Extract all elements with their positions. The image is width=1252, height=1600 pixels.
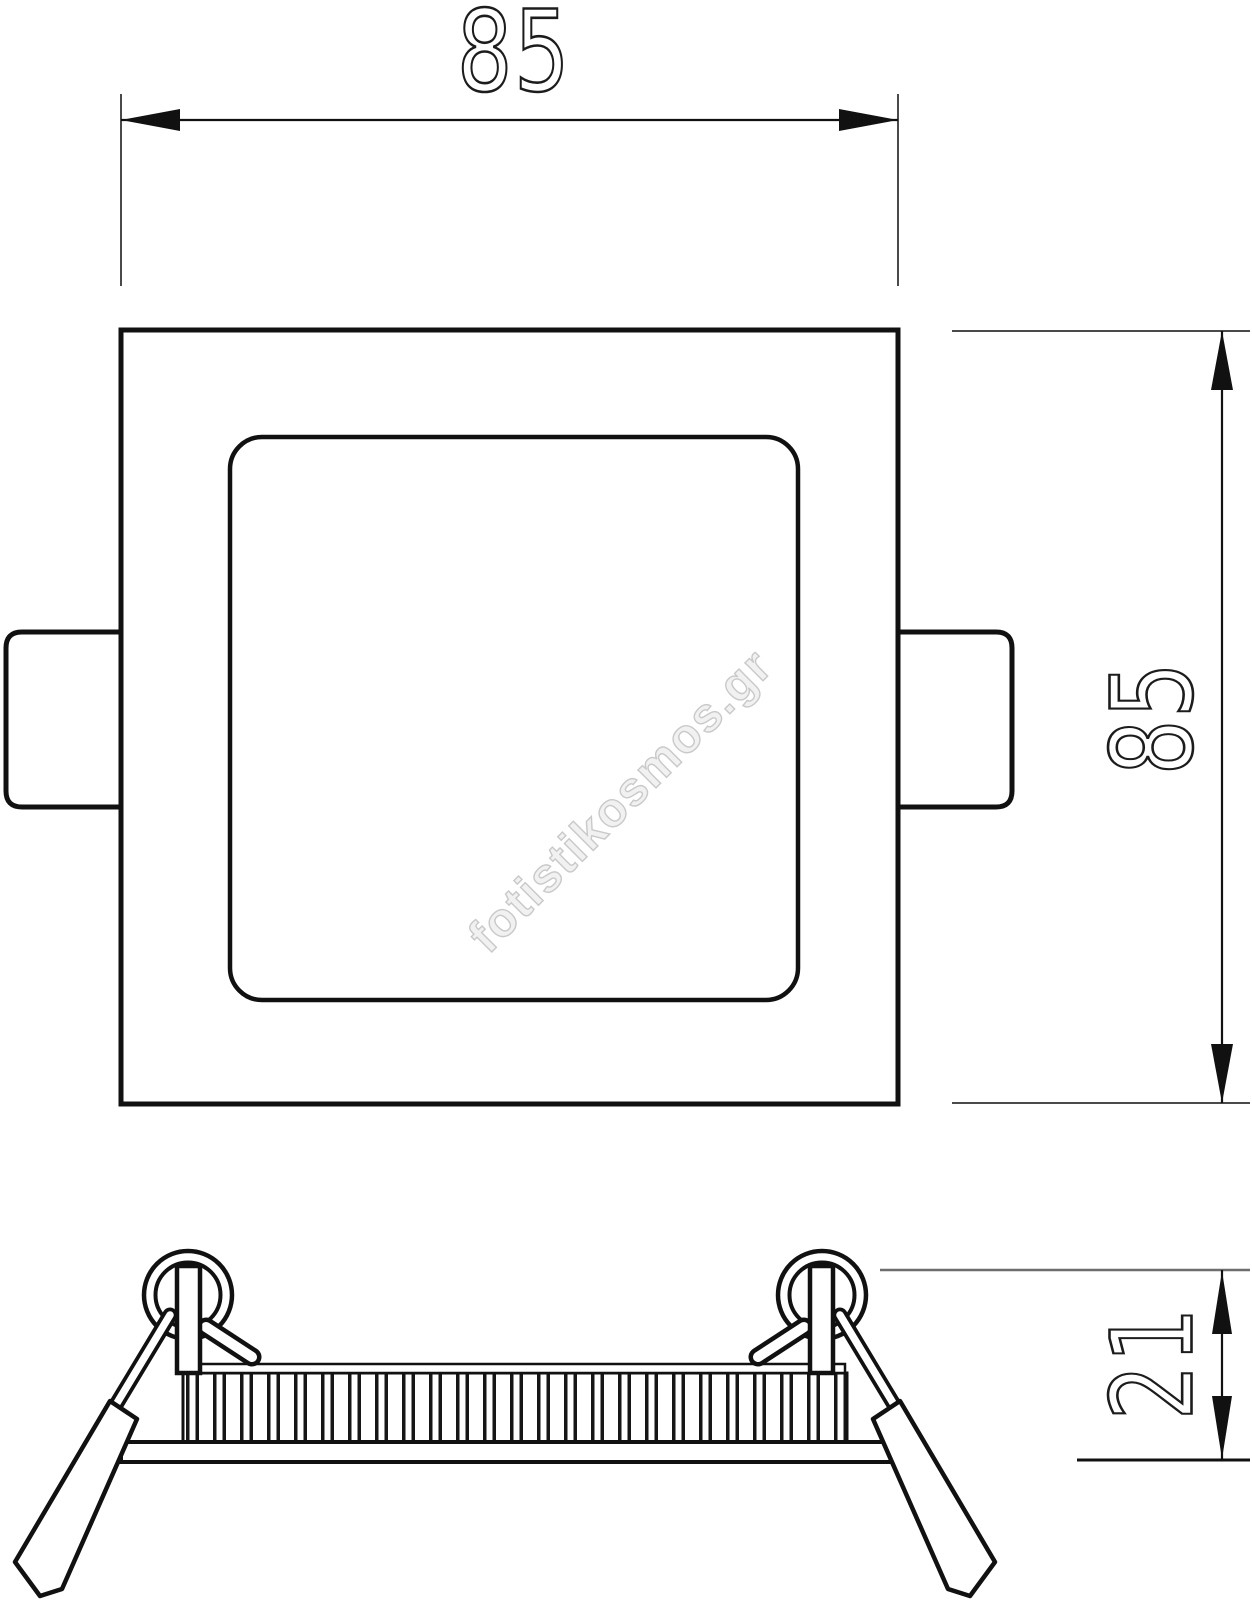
heatsink-top-rail (186, 1364, 845, 1373)
mounting-tab-left (6, 632, 121, 807)
led-panel-dimension-drawing: fotistikosmos.gr 85 85 (0, 0, 1252, 1600)
dimension-height: 85 (952, 331, 1250, 1103)
arrowhead-down-icon (1211, 1044, 1233, 1103)
watermark: fotistikosmos.gr (459, 639, 783, 963)
front-view (6, 330, 1012, 1104)
mounting-tab-right (898, 632, 1012, 807)
dimension-depth: 21 (880, 1270, 1250, 1460)
dimension-width-label: 85 (457, 0, 571, 117)
dimension-depth-label: 21 (1088, 1306, 1218, 1420)
technical-drawing-page: fotistikosmos.gr 85 85 (0, 0, 1252, 1600)
dimension-width: 85 (121, 0, 898, 286)
arrowhead-left-icon (121, 109, 180, 131)
arrowhead-up-icon (1211, 331, 1233, 390)
watermark-text: fotistikosmos.gr (459, 639, 783, 963)
arrowhead-right-icon (839, 109, 898, 131)
side-view (15, 1251, 995, 1596)
panel-face-plate (121, 1442, 892, 1462)
dimension-height-label: 85 (1088, 661, 1218, 775)
heatsink-fins (183, 1373, 847, 1442)
